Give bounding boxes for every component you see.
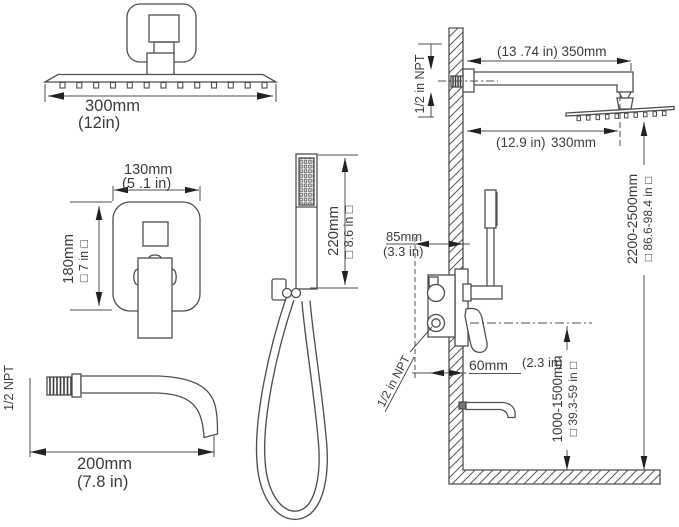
head-offset-mm-label: 330mm <box>551 135 596 150</box>
diagram-canvas: 300mm (12in) 130mm (5 .1 in) 180mm □ 7 i… <box>0 0 679 527</box>
hose-nut-right <box>292 289 301 298</box>
head-width-in: (12in) <box>78 114 120 132</box>
spout-length-in: (7.8 in) <box>77 473 128 491</box>
holder-wand <box>485 190 496 228</box>
arrow-left <box>48 92 64 100</box>
flange-inner-square <box>149 15 179 42</box>
arm-length-label: (13 .74 in) 350mm <box>497 44 607 59</box>
spout-thread-label: 1/2 NPT <box>2 365 16 411</box>
head-height-mm-label: 2200-2500mm <box>624 174 640 264</box>
valve-depth-mm-label: 85mm <box>386 229 422 244</box>
head-offset-in-label: (12.9 in) <box>496 135 546 150</box>
valve-height-in: □ 7 in □ <box>77 239 91 282</box>
arrow-right <box>257 92 273 100</box>
shower-system-dimension-diagram: 300mm (12in) 130mm (5 .1 in) 180mm □ 7 i… <box>0 0 679 527</box>
hand-shower-hose <box>261 299 324 515</box>
wand-height-mm: 220mm <box>325 206 342 256</box>
head-height-in-label: □ 86.6-98.4 in □ <box>641 177 655 262</box>
valve-depth-in-label: (3.3 in) <box>383 244 423 259</box>
valve-height-mm: 180mm <box>60 234 77 284</box>
holder-wall-plate <box>463 284 471 301</box>
valve-npt-label: 1/2 in NPT <box>374 352 413 409</box>
spout-length-mm: 200mm <box>77 455 132 473</box>
holder-arm <box>470 286 502 299</box>
valve-npt-label-group: 1/2 in NPT <box>373 350 414 411</box>
spout-offset-mm-label: 60mm <box>469 357 508 373</box>
spout-height-in-label: □ 39.3-59 in □ <box>566 362 580 437</box>
holder-rod <box>487 226 494 288</box>
valve-trim-side <box>455 269 468 346</box>
hose-nut-left <box>283 289 292 298</box>
spout-body <box>81 376 218 438</box>
head-stem <box>147 53 174 75</box>
valve-npt-leader <box>410 327 432 352</box>
arm-length-dimension <box>467 61 631 71</box>
head-ball-cup <box>617 98 633 109</box>
spout-side-body <box>466 403 515 418</box>
arm-npt-label: 1/2 in NPT <box>413 54 427 113</box>
shower-arm <box>463 72 633 92</box>
spout-side-flange <box>459 402 466 409</box>
head-ball-joint <box>619 92 631 98</box>
spout-flange <box>72 374 81 397</box>
hand-shower-face <box>299 158 314 205</box>
shower-head-plate <box>45 75 276 83</box>
spout-thread-lines <box>50 377 71 395</box>
flange-inner-neck <box>154 42 174 54</box>
valve-handle <box>138 258 172 338</box>
spout-height-mm-label: 1000-1500mm <box>550 355 565 442</box>
valve-width-in: (5 .1 in) <box>122 176 171 192</box>
valve-upper-port <box>428 285 445 302</box>
head-width-mm: 300mm <box>85 97 140 115</box>
overhead-shower-front-view <box>45 4 276 102</box>
tub-spout-side-view <box>30 374 218 457</box>
shower-head-nozzles <box>60 83 267 89</box>
wand-height-in: □ 8.6 in □ <box>342 205 356 258</box>
